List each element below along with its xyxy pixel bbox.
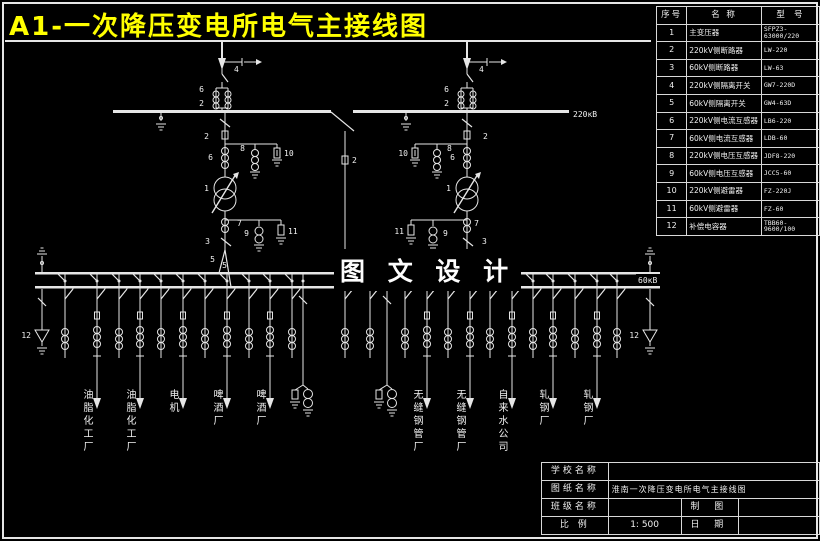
diagram-shape: 2: [199, 99, 204, 108]
diagram-shape: 60кВ: [638, 276, 657, 285]
table-cell: 220kV侧断路器: [687, 42, 762, 60]
diagram-shape: 9: [443, 229, 448, 238]
diagram-shape: [508, 398, 516, 409]
table-cell: 220kV侧避雷器: [687, 182, 762, 200]
diagram-shape: 6: [208, 153, 213, 162]
diagram-shape: [387, 385, 392, 389]
diagram-shape: 7: [474, 219, 479, 228]
feeder-label: 轧钢厂: [537, 389, 547, 428]
feeder-label: 油脂化工厂: [81, 389, 91, 454]
reserve-feeder: [153, 273, 169, 358]
table-row: 12补偿电容器TBB60-9600/100: [657, 218, 820, 236]
diagram-shape: [255, 235, 263, 243]
feeder-label: 轧钢厂: [581, 389, 591, 428]
diagram-shape: [266, 398, 274, 409]
diagram-shape: [304, 399, 313, 408]
table-row: 560kV侧隔离开关GW4-63D: [657, 94, 820, 112]
table-cell: SFPZ3-63000/220: [761, 24, 819, 42]
capacitor-bank: 12: [629, 248, 657, 354]
diagram-shape: [255, 227, 263, 235]
feeder-label: 无缝钢管厂: [411, 389, 421, 454]
diagram-shape: [304, 390, 313, 399]
table-header-cell: 型 号: [761, 7, 819, 25]
diagram-shape: [553, 289, 561, 299]
diagram-shape: 12: [629, 331, 639, 340]
table-cell: 8: [657, 147, 687, 165]
diagram-shape: 1: [204, 184, 209, 193]
diagram-shape: [179, 398, 187, 409]
reserve-feeder: [57, 273, 73, 358]
diagram-shape: [379, 385, 387, 390]
table-cell: 60kV侧断路器: [687, 59, 762, 77]
class-name-label: 班级名称: [542, 499, 609, 517]
diagram-shape: 6: [199, 85, 204, 94]
diagram-shape: [93, 398, 101, 409]
diagram-shape: [227, 289, 235, 299]
table-cell: 60kV侧隔离开关: [687, 94, 762, 112]
table-cell: GW4-63D: [761, 94, 819, 112]
table-row: 760kV侧电流互感器LDB-60: [657, 130, 820, 148]
diagram-shape: 8: [447, 144, 452, 153]
reserve-feeder: [111, 273, 127, 358]
diagram-shape: 9: [244, 229, 249, 238]
reserve-feeder: [197, 273, 213, 358]
table-row: 360kV侧断路器LW-63: [657, 59, 820, 77]
table-cell: JDF8-220: [761, 147, 819, 165]
diagram-shape: [467, 74, 473, 82]
diagram-shape: [353, 110, 569, 113]
table-row: 2220kV侧断路器LW-220: [657, 42, 820, 60]
table-cell: LW-220: [761, 42, 819, 60]
table-cell: 5: [657, 94, 687, 112]
cad-drawing-page: { "page": { "title": "A1-一次降压变电所电气主接线图" …: [0, 0, 820, 541]
diagram-shape: [575, 289, 583, 299]
table-cell: 2: [657, 42, 687, 60]
diagram-shape: [597, 289, 605, 299]
diagram-shape: [161, 289, 169, 299]
incoming-line: 462: [444, 42, 507, 111]
feeder-label: 啤酒厂: [254, 389, 264, 428]
table-row: 1160kV侧避雷器FZ-60: [657, 200, 820, 218]
diagram-shape: [292, 289, 300, 299]
table-header-row: 序号名 称型 号: [657, 7, 820, 25]
feeder-label: 自来水公司: [496, 389, 506, 454]
table-row: 6220kV侧电流互感器LB6-220: [657, 112, 820, 130]
drawing-name-value: 淮南一次降压变电所电气主接线图: [608, 481, 819, 499]
diagram-shape: [617, 289, 625, 299]
table-cell: 220kV侧隔离开关: [687, 77, 762, 95]
diagram-shape: [388, 399, 397, 408]
diagram-shape: [429, 227, 437, 235]
diagram-shape: [423, 398, 431, 409]
date-value: [739, 517, 820, 535]
feeder-label: 无缝钢管厂: [454, 389, 464, 454]
diagram-shape: [376, 390, 382, 399]
table-cell: FZ-60: [761, 200, 819, 218]
table-cell: FZ-220J: [761, 182, 819, 200]
diagram-shape: [434, 150, 441, 157]
table-cell: 12: [657, 218, 687, 236]
table-header-cell: 序号: [657, 7, 687, 25]
diagram-shape: [501, 59, 507, 65]
table-cell: LDB-60: [761, 130, 819, 148]
diagram-shape: [533, 289, 541, 299]
diagram-shape: [434, 157, 441, 164]
table-cell: 60kV侧避雷器: [687, 200, 762, 218]
table-cell: 4: [657, 77, 687, 95]
diagram-shape: 11: [288, 227, 298, 236]
diagram-shape: [136, 398, 144, 409]
diagram-shape: [270, 289, 278, 299]
table-row: 4220kV侧隔离开关GW7-220D: [657, 77, 820, 95]
diagram-shape: 2: [204, 132, 209, 141]
drawing-title: A1-一次降压变电所电气主接线图: [9, 6, 428, 43]
center-watermark-text: 图 文 设 计: [334, 249, 521, 291]
capacitor-bank: 12: [21, 248, 49, 354]
diagram-shape: [222, 74, 228, 82]
school-name-label: 学校名称: [542, 463, 609, 481]
feeder-label: 油脂化工厂: [124, 389, 134, 454]
diagram-shape: [292, 390, 298, 399]
table-cell: 60kV侧电流互感器: [687, 130, 762, 148]
diagram-shape: [119, 289, 127, 299]
diagram-shape: [223, 398, 231, 409]
diagram-shape: [593, 398, 601, 409]
diagram-shape: [252, 164, 259, 171]
diagram-shape: [249, 289, 257, 299]
table-cell: 补偿电容器: [687, 218, 762, 236]
diagram-shape: [331, 112, 354, 131]
diagram-shape: 11: [394, 227, 404, 236]
diagram-shape: [278, 225, 284, 235]
diagram-shape: 6: [450, 153, 455, 162]
date-label: 日 期: [681, 517, 739, 535]
diagram-shape: [140, 289, 148, 299]
diagram-shape: [97, 289, 105, 299]
table-cell: TBB60-9600/100: [761, 218, 819, 236]
diagram-shape: 6: [444, 85, 449, 94]
table-row: 960kV侧电压互感器JCC5-60: [657, 165, 820, 183]
class-name-value: [608, 499, 681, 517]
diagram-shape: 220кВ: [573, 110, 597, 119]
diagram-shape: 8: [240, 144, 245, 153]
table-cell: 7: [657, 130, 687, 148]
diagram-shape: 4: [479, 65, 484, 74]
diagram-shape: 2: [483, 132, 488, 141]
diagram-shape: 3: [205, 237, 210, 246]
feeder-label: 啤酒厂: [211, 389, 221, 428]
scale-label: 比 例: [542, 517, 609, 535]
table-cell: 主变压器: [687, 24, 762, 42]
reserve-feeder: [567, 273, 583, 358]
reserve-feeder: [241, 273, 257, 358]
table-cell: 6: [657, 112, 687, 130]
diagram-shape: 4: [234, 65, 239, 74]
bus-pt-group: [290, 273, 313, 416]
title-block: 学校名称 图纸名称 淮南一次降压变电所电气主接线图 班级名称 制 图 比 例 1…: [541, 462, 820, 535]
diagram-shape: [65, 289, 73, 299]
diagram-shape: [205, 289, 213, 299]
table-row: 1主变压器SFPZ3-63000/220: [657, 24, 820, 42]
diagram-shape: 3: [482, 237, 487, 246]
diagram-shape: [303, 385, 308, 389]
incoming-line: 462: [199, 42, 262, 111]
diagram-shape: [388, 390, 397, 399]
diagram-shape: 2: [352, 156, 357, 165]
table-cell: 1: [657, 24, 687, 42]
diagram-shape: [434, 164, 441, 171]
bus-pt-group: [374, 273, 397, 416]
diagram-shape: [221, 238, 231, 246]
diagram-shape: [429, 235, 437, 243]
diagram-shape: [549, 398, 557, 409]
diagram-shape: [295, 385, 303, 390]
reserve-feeder: [609, 273, 625, 358]
table-cell: LB6-220: [761, 112, 819, 130]
table-cell: 9: [657, 165, 687, 183]
table-cell: JCC5-60: [761, 165, 819, 183]
component-table: 序号名 称型 号1主变压器SFPZ3-63000/2202220kV侧断路器LW…: [656, 6, 820, 236]
table-cell: 3: [657, 59, 687, 77]
scale-value: 1: 500: [608, 517, 681, 535]
table-part: 序号名 称型 号1主变压器SFPZ3-63000/2202220kV侧断路器LW…: [657, 7, 820, 236]
diagram-shape: [408, 225, 414, 235]
diagram-shape: [252, 150, 259, 157]
table-cell: 10: [657, 182, 687, 200]
table-header-cell: 名 称: [687, 7, 762, 25]
table-row: 8220kV侧电压互感器JDF8-220: [657, 147, 820, 165]
table-cell: 60kV侧电压互感器: [687, 165, 762, 183]
table-cell: 220kV侧电流互感器: [687, 112, 762, 130]
diagram-shape: [466, 398, 474, 409]
diagram-shape: 5: [210, 255, 215, 264]
reserve-feeder: [525, 273, 541, 358]
transformer-branch: 2810617391155: [204, 113, 298, 287]
diagram-shape: [183, 289, 191, 299]
maker-label: 制 图: [681, 499, 739, 517]
table-cell: LW-63: [761, 59, 819, 77]
table-cell: GW7-220D: [761, 77, 819, 95]
diagram-shape: [643, 330, 657, 342]
diagram-shape: [463, 238, 473, 246]
drawing-name-label: 图纸名称: [542, 481, 609, 499]
diagram-shape: 10: [398, 149, 408, 158]
table-cell: 11: [657, 200, 687, 218]
diagram-shape: [35, 330, 49, 342]
diagram-shape: 10: [284, 149, 294, 158]
reserve-feeder: [284, 273, 300, 358]
school-name-value: [608, 463, 819, 481]
diagram-shape: 12: [21, 331, 31, 340]
maker-value: [739, 499, 820, 517]
diagram-shape: 5: [222, 261, 227, 270]
table-row: 10220kV侧避雷器FZ-220J: [657, 182, 820, 200]
diagram-shape: 2: [444, 99, 449, 108]
diagram-shape: 1: [446, 184, 451, 193]
diagram-shape: [252, 157, 259, 164]
diagram-shape: [256, 59, 262, 65]
table-cell: 220kV侧电压互感器: [687, 147, 762, 165]
feeder-label: 电机: [167, 389, 177, 415]
